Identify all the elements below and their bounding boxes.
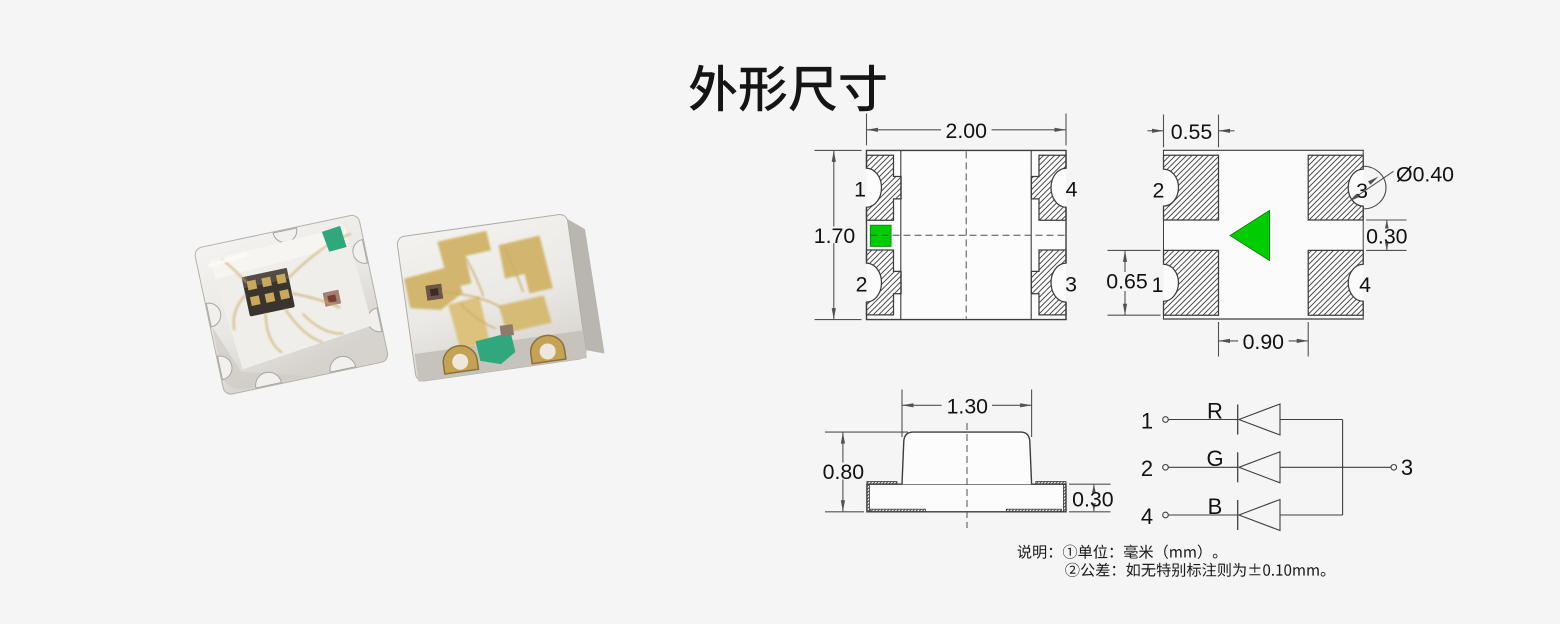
svg-text:Ø0.40: Ø0.40 — [1396, 163, 1454, 187]
svg-text:1.30: 1.30 — [947, 394, 989, 418]
svg-text:R: R — [1207, 398, 1223, 423]
svg-text:0.30: 0.30 — [1072, 487, 1114, 511]
svg-text:0.30: 0.30 — [1366, 225, 1408, 249]
svg-text:3: 3 — [1401, 455, 1413, 480]
svg-text:0.55: 0.55 — [1171, 120, 1212, 144]
svg-text:4: 4 — [1066, 178, 1078, 202]
svg-text:4: 4 — [1141, 504, 1153, 529]
svg-text:2.00: 2.00 — [945, 119, 987, 143]
svg-text:1: 1 — [1141, 408, 1153, 433]
svg-text:3: 3 — [1356, 179, 1368, 203]
svg-text:3: 3 — [1065, 273, 1077, 297]
svg-text:0.90: 0.90 — [1243, 330, 1285, 354]
svg-text:4: 4 — [1359, 273, 1371, 297]
svg-text:G: G — [1206, 446, 1223, 471]
svg-text:1: 1 — [854, 178, 866, 202]
svg-text:0.80: 0.80 — [823, 460, 865, 484]
svg-text:2: 2 — [1141, 456, 1153, 481]
svg-text:1.70: 1.70 — [814, 224, 856, 248]
svg-text:0.65: 0.65 — [1106, 269, 1147, 293]
svg-text:2: 2 — [1152, 179, 1164, 203]
svg-text:B: B — [1208, 494, 1223, 519]
svg-text:1: 1 — [1152, 273, 1164, 297]
svg-text:2: 2 — [856, 273, 868, 297]
